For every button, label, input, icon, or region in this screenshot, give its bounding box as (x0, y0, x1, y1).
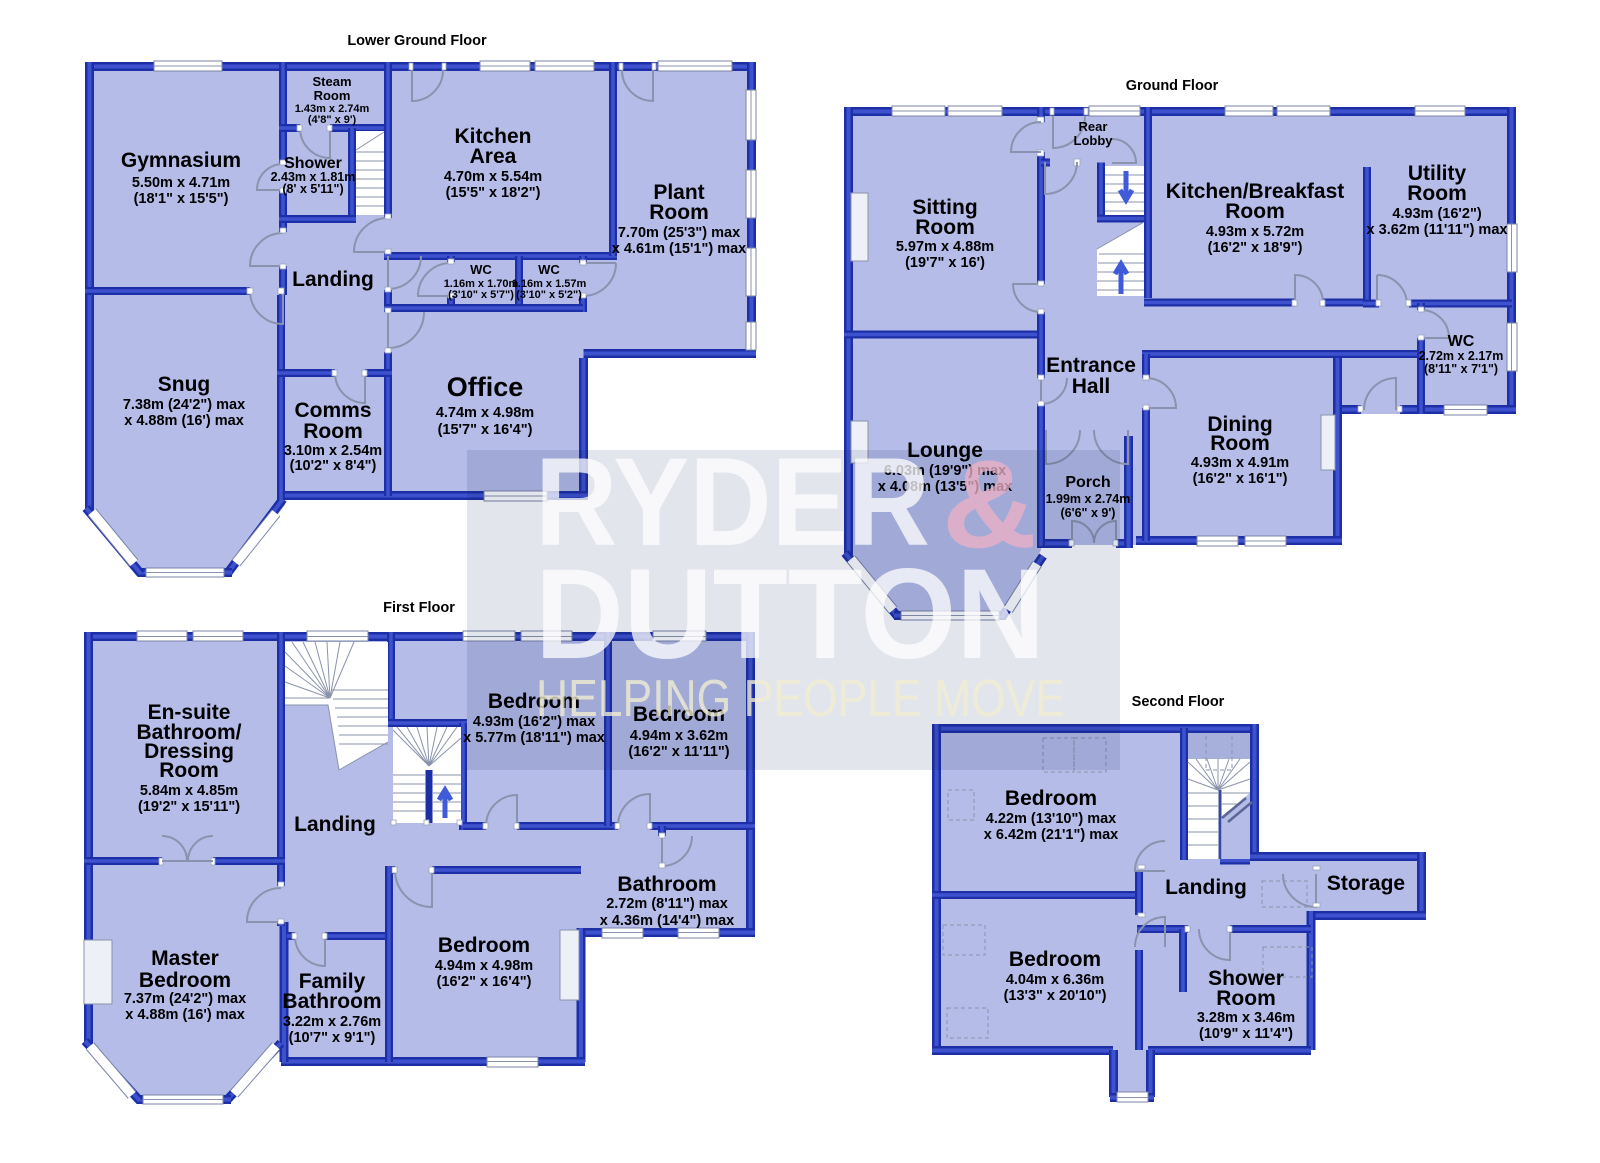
svg-text:4.22m (13'10") max: 4.22m (13'10") max (986, 811, 1116, 827)
svg-text:4.70m x 5.54m: 4.70m x 5.54m (444, 169, 542, 185)
svg-text:Room: Room (915, 216, 975, 239)
svg-text:Bedroom: Bedroom (1005, 787, 1097, 810)
svg-text:Room: Room (314, 88, 351, 103)
svg-text:Landing: Landing (292, 268, 374, 291)
svg-text:First Floor: First Floor (383, 600, 455, 616)
svg-text:2.72m (8'11") max: 2.72m (8'11") max (606, 896, 728, 912)
svg-text:x 4.88m (16') max: x 4.88m (16') max (125, 1007, 245, 1023)
svg-text:5.50m x 4.71m: 5.50m x 4.71m (132, 175, 230, 191)
svg-text:Storage: Storage (1327, 872, 1405, 895)
svg-text:7.38m (24'2") max: 7.38m (24'2") max (123, 397, 245, 413)
svg-text:(8'11" x 7'1"): (8'11" x 7'1") (1424, 362, 1498, 376)
svg-text:Bathroom: Bathroom (282, 990, 381, 1013)
svg-text:Ground Floor: Ground Floor (1126, 78, 1219, 94)
svg-text:Entrance: Entrance (1046, 354, 1136, 377)
svg-text:3.10m x 2.54m: 3.10m x 2.54m (284, 443, 382, 459)
svg-text:7.70m (25'3") max: 7.70m (25'3") max (618, 225, 740, 241)
svg-text:Room: Room (1225, 200, 1285, 223)
svg-text:(16'2" x 18'9"): (16'2" x 18'9") (1208, 240, 1303, 256)
svg-text:(8' x 5'11"): (8' x 5'11") (282, 182, 343, 196)
svg-text:Room: Room (649, 201, 709, 224)
svg-text:5.84m x 4.85m: 5.84m x 4.85m (140, 783, 238, 799)
svg-text:(10'7" x 9'1"): (10'7" x 9'1") (289, 1030, 376, 1046)
svg-text:4.93m x 5.72m: 4.93m x 5.72m (1206, 224, 1304, 240)
svg-text:Hall: Hall (1072, 375, 1111, 398)
svg-text:Bedroom: Bedroom (1009, 948, 1101, 971)
svg-text:Landing: Landing (294, 813, 376, 836)
svg-text:Office: Office (447, 372, 524, 402)
svg-text:(15'7" x 16'4"): (15'7" x 16'4") (438, 422, 533, 438)
svg-text:Snug: Snug (158, 373, 211, 396)
svg-text:(15'5" x 18'2"): (15'5" x 18'2") (446, 185, 541, 201)
svg-text:(19'2" x 15'11"): (19'2" x 15'11") (138, 799, 240, 815)
svg-text:Steam: Steam (312, 74, 351, 89)
svg-text:5.97m x 4.88m: 5.97m x 4.88m (896, 239, 994, 255)
svg-text:4.04m x 6.36m: 4.04m x 6.36m (1006, 972, 1104, 988)
svg-text:4.93m x 4.91m: 4.93m x 4.91m (1191, 455, 1289, 471)
svg-text:Room: Room (1210, 432, 1270, 455)
svg-text:(16'2" x 16'4"): (16'2" x 16'4") (437, 974, 532, 990)
svg-text:(18'1" x 15'5"): (18'1" x 15'5") (134, 191, 229, 207)
svg-text:(10'9" x 11'4"): (10'9" x 11'4") (1199, 1026, 1293, 1042)
svg-text:Bedroom: Bedroom (139, 969, 231, 992)
svg-text:2.72m x 2.17m: 2.72m x 2.17m (1419, 349, 1504, 363)
svg-text:(13'3" x 20'10"): (13'3" x 20'10") (1004, 988, 1107, 1004)
svg-text:HELPING PEOPLE MOVE: HELPING PEOPLE MOVE (536, 670, 1065, 728)
svg-text:(3'10" x 5'2"): (3'10" x 5'2") (516, 289, 582, 301)
svg-text:Area: Area (470, 145, 517, 168)
svg-text:Room: Room (159, 759, 219, 782)
svg-text:DUTTON: DUTTON (535, 543, 1045, 686)
svg-text:x 4.61m (15'1") max: x 4.61m (15'1") max (612, 241, 746, 257)
svg-text:x 4.36m (14'4") max: x 4.36m (14'4") max (600, 913, 734, 929)
svg-text:Room: Room (1216, 987, 1276, 1010)
svg-text:(19'7" x 16'): (19'7" x 16') (905, 255, 985, 271)
svg-text:Bathroom: Bathroom (617, 873, 716, 896)
svg-text:x 4.88m (16') max: x 4.88m (16') max (124, 413, 244, 429)
svg-text:4.93m (16'2"): 4.93m (16'2") (1392, 206, 1481, 222)
svg-text:WC: WC (1448, 333, 1475, 350)
svg-text:4.74m x 4.98m: 4.74m x 4.98m (436, 405, 534, 421)
svg-text:Comms: Comms (294, 399, 371, 422)
svg-text:x 3.62m (11'11") max: x 3.62m (11'11") max (1367, 222, 1508, 238)
svg-text:(4'8" x 9'): (4'8" x 9') (308, 114, 357, 126)
svg-text:Rear: Rear (1079, 119, 1108, 134)
svg-text:3.28m x 3.46m: 3.28m x 3.46m (1197, 1010, 1295, 1026)
svg-text:Second Floor: Second Floor (1132, 694, 1225, 710)
svg-text:(3'10" x 5'7"): (3'10" x 5'7") (448, 289, 514, 301)
svg-text:Master: Master (151, 947, 219, 970)
svg-text:Landing: Landing (1165, 876, 1247, 899)
svg-text:x 6.42m (21'1") max: x 6.42m (21'1") max (984, 827, 1118, 843)
svg-text:Room: Room (303, 420, 363, 443)
svg-text:7.37m (24'2") max: 7.37m (24'2") max (124, 991, 246, 1007)
svg-text:4.94m x 4.98m: 4.94m x 4.98m (435, 958, 533, 974)
svg-text:WC: WC (538, 262, 560, 277)
svg-text:(16'2" x 16'1"): (16'2" x 16'1") (1193, 471, 1288, 487)
svg-text:Lower Ground Floor: Lower Ground Floor (347, 33, 487, 49)
svg-text:3.22m x 2.76m: 3.22m x 2.76m (283, 1014, 381, 1030)
svg-text:WC: WC (470, 262, 492, 277)
svg-text:Bedroom: Bedroom (438, 934, 530, 957)
svg-text:Lobby: Lobby (1074, 133, 1114, 148)
svg-text:Gymnasium: Gymnasium (121, 149, 241, 172)
svg-text:(10'2" x 8'4"): (10'2" x 8'4") (290, 458, 377, 474)
svg-text:Room: Room (1407, 182, 1467, 205)
